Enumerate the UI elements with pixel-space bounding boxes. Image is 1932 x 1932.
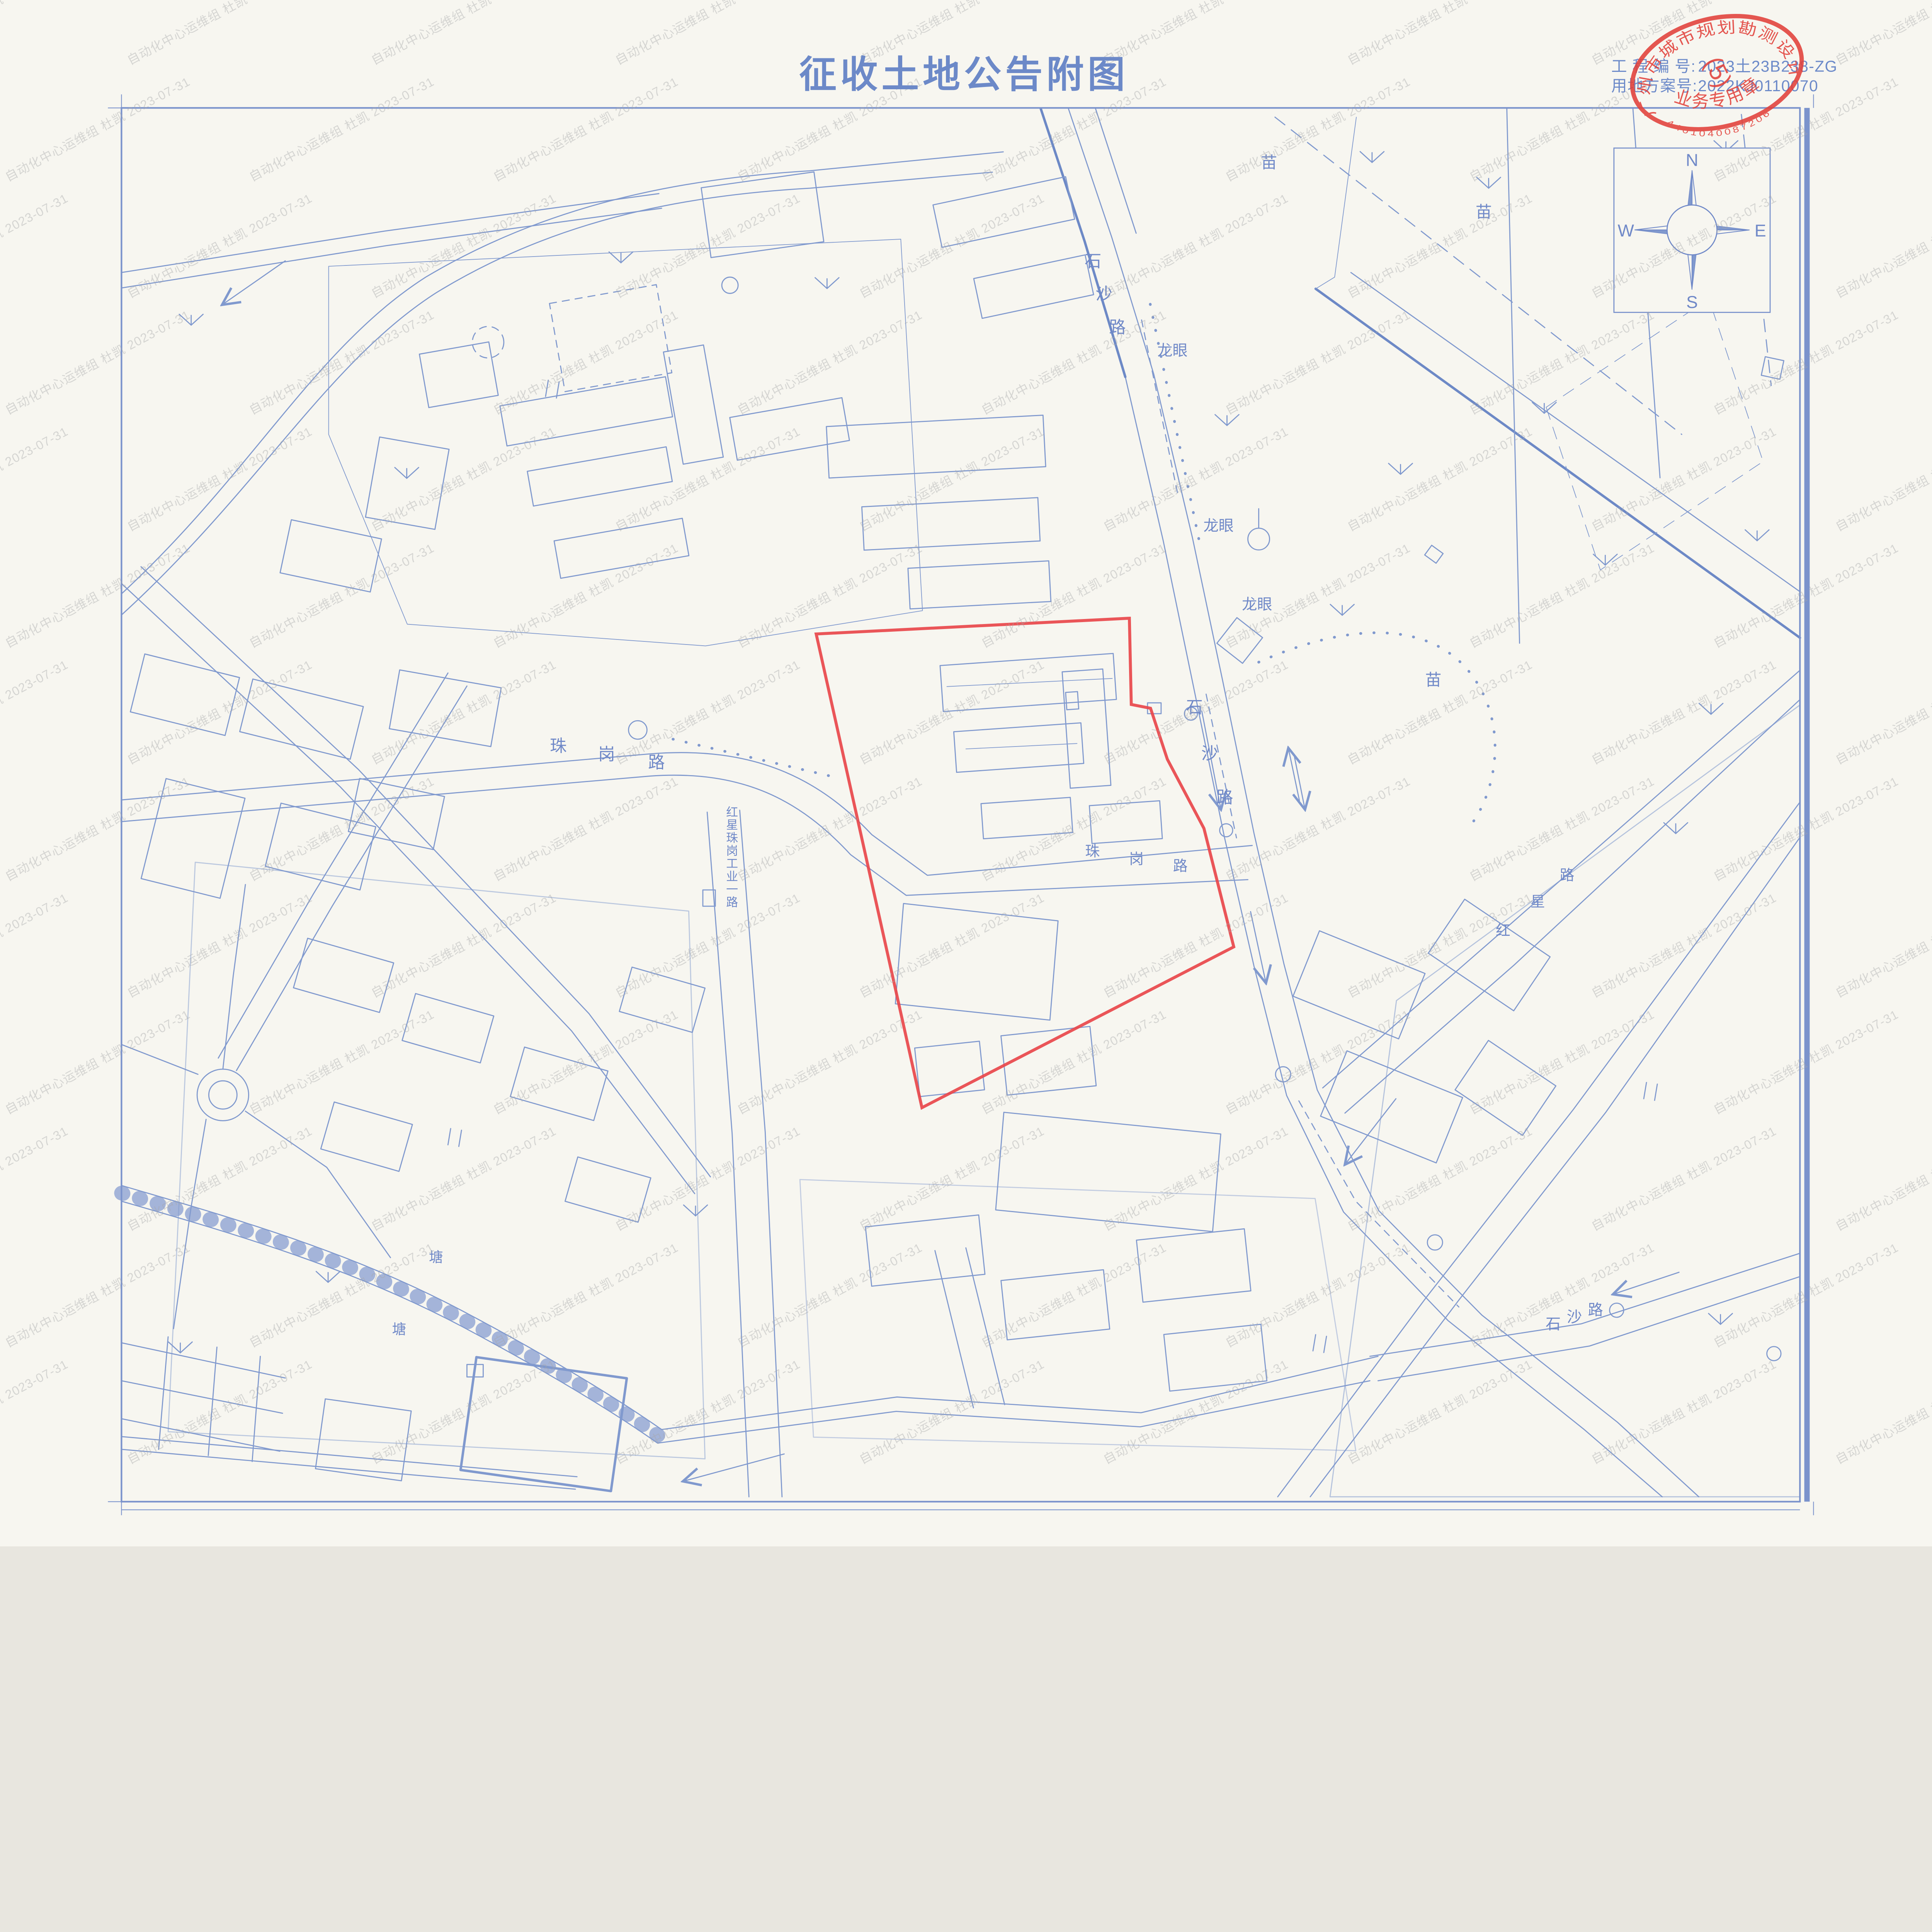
compass: N E S W xyxy=(1614,148,1770,312)
map-label: 红 xyxy=(1496,923,1510,939)
compass-north-label: N xyxy=(1686,150,1698,170)
map-label: 龙眼 xyxy=(1203,517,1234,534)
compass-south-label: S xyxy=(1686,292,1698,312)
map-label: 路 xyxy=(1560,867,1574,884)
map-label: 沙 xyxy=(1567,1309,1582,1326)
map-label: 路 xyxy=(1216,789,1233,807)
map-label: 珠 xyxy=(1085,844,1100,860)
map-label: 路 xyxy=(1173,858,1188,874)
map-label: 塘 xyxy=(392,1321,406,1337)
map-label: 苗 xyxy=(1425,671,1441,689)
map-label: 路 xyxy=(648,753,665,772)
land-expropriation-notice-page: 石沙路石沙路石沙路珠岗路珠岗路红星路红星珠岗工业一路龙眼龙眼龙眼苗苗苗塘塘 N … xyxy=(0,0,1932,1546)
map-label: 龙眼 xyxy=(1242,596,1272,613)
map-label: 石 xyxy=(1085,252,1102,271)
map-label: 沙 xyxy=(1201,745,1218,763)
map-label: 红星珠岗工业一路 xyxy=(726,805,738,909)
map-label: 路 xyxy=(1588,1301,1603,1318)
map-label: 岗 xyxy=(598,745,615,764)
map-label: 石 xyxy=(1546,1316,1561,1333)
map-label: 龙眼 xyxy=(1157,342,1188,359)
compass-east-label: E xyxy=(1755,221,1766,240)
map-label: 珠 xyxy=(550,737,567,755)
page-title: 征收土地公告附图 xyxy=(799,53,1129,95)
land-expropriation-map: 石沙路石沙路石沙路珠岗路珠岗路红星路红星珠岗工业一路龙眼龙眼龙眼苗苗苗塘塘 N … xyxy=(0,0,1932,1546)
map-label: 岗 xyxy=(1129,851,1144,867)
compass-west-label: W xyxy=(1618,221,1634,240)
